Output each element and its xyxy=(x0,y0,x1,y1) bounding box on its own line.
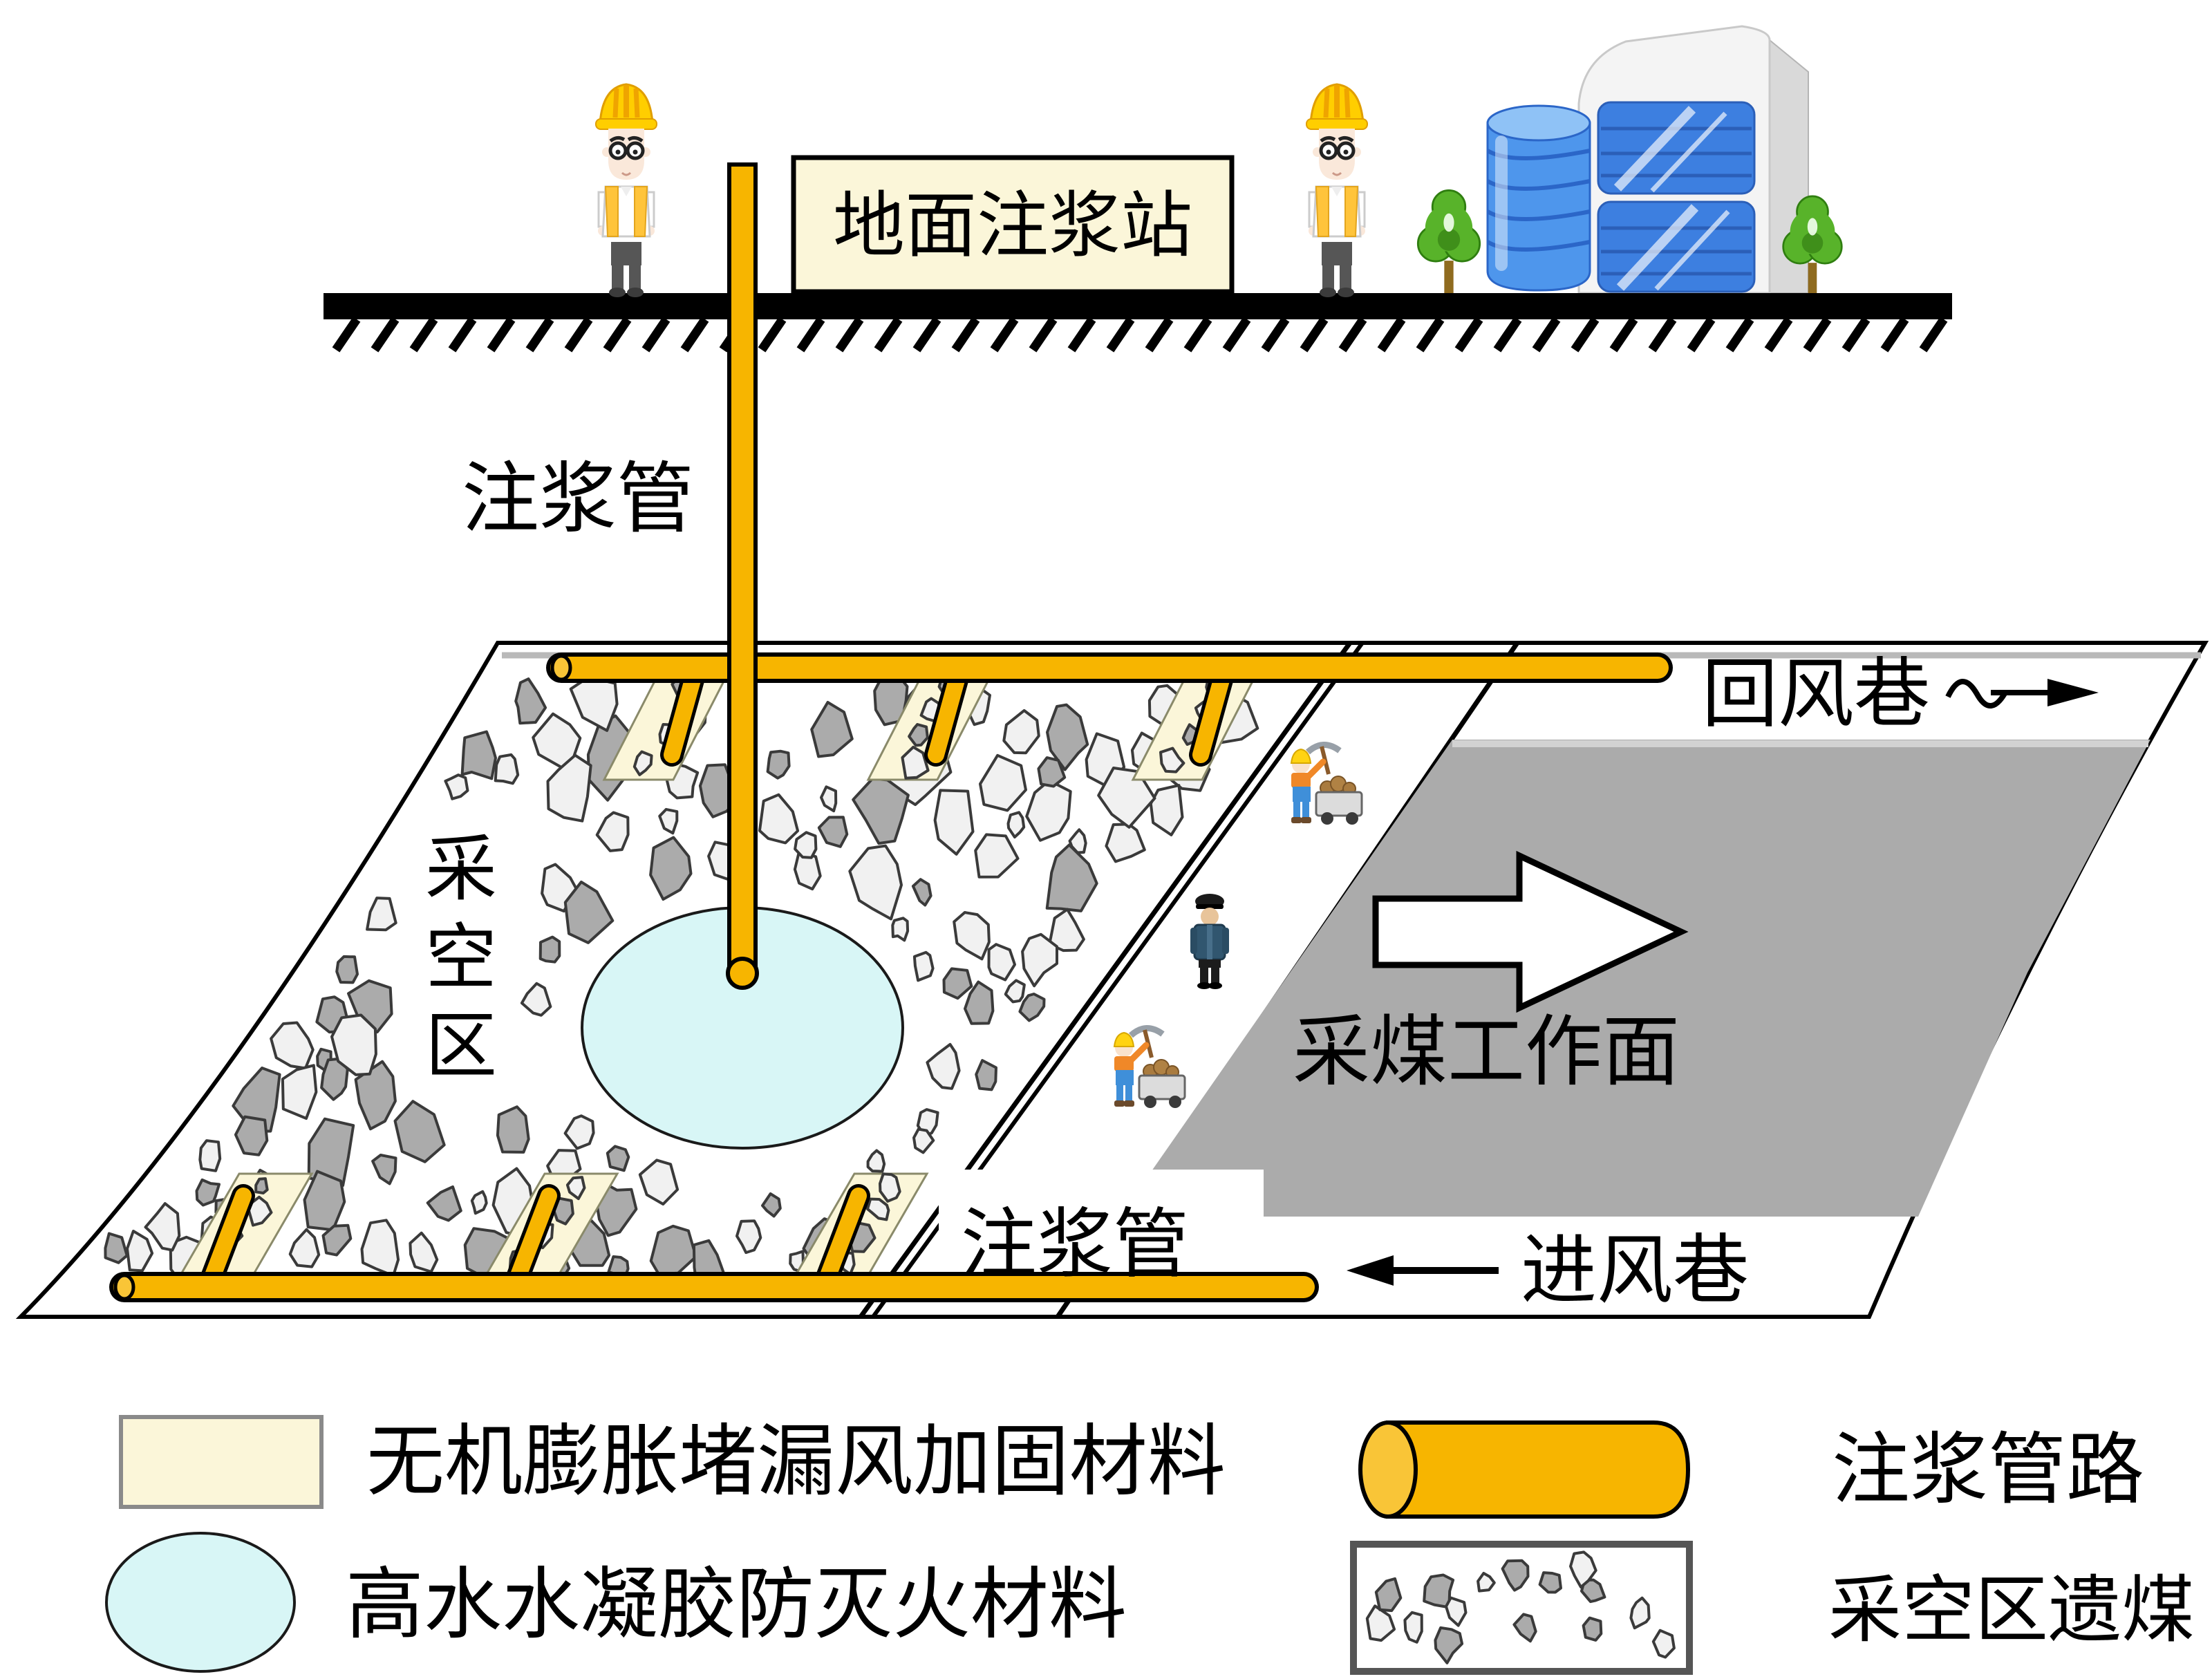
top-main-pipe xyxy=(552,656,1658,679)
goaf-label-char-3: 区 xyxy=(425,1007,497,1087)
vertical-grout-pipe xyxy=(728,165,757,988)
legend-swatch-pipe xyxy=(1360,1423,1688,1517)
office-building-icon xyxy=(1579,26,1808,293)
engineer-icon-1 xyxy=(596,84,657,297)
mine-grouting-diagram: 采煤工作面 xyxy=(0,0,2212,1679)
ground-hatch-pattern xyxy=(336,319,1944,350)
goaf-label-char-1: 采 xyxy=(425,830,497,910)
legend-label-1: 无机膨胀堵漏风加固材料 xyxy=(366,1419,1226,1506)
grout-pipe-top-label: 注浆管 xyxy=(462,457,694,543)
diagram-canvas: 采煤工作面 xyxy=(0,0,2212,1679)
intake-airway-label: 进风巷 xyxy=(1521,1229,1749,1313)
legend-swatch-cream xyxy=(121,1417,321,1507)
legend: 无机膨胀堵漏风加固材料 高水水凝胶防灭火材料 注浆管路 采空区遗煤 xyxy=(106,1417,2195,1671)
legend-swatch-gel xyxy=(106,1533,294,1671)
legend-label-3: 注浆管路 xyxy=(1832,1427,2144,1514)
station-label: 地面注浆站 xyxy=(833,187,1192,266)
surface-scene: 地面注浆站 xyxy=(324,26,1952,350)
legend-label-4: 采空区遗煤 xyxy=(1828,1570,2195,1651)
return-airway-label: 回风巷 xyxy=(1702,653,1930,737)
engineer-icon-2 xyxy=(1306,84,1367,297)
working-face-label: 采煤工作面 xyxy=(1293,1010,1680,1096)
grout-pipe-bottom-label: 注浆管 xyxy=(961,1203,1189,1287)
legend-label-2: 高水水凝胶防灭火材料 xyxy=(346,1562,1127,1649)
goaf-label-char-2: 空 xyxy=(425,919,497,998)
ground-surface-line xyxy=(324,293,1952,319)
tree-icon-1 xyxy=(1418,190,1479,293)
slurry-tank-icon xyxy=(1488,106,1590,290)
